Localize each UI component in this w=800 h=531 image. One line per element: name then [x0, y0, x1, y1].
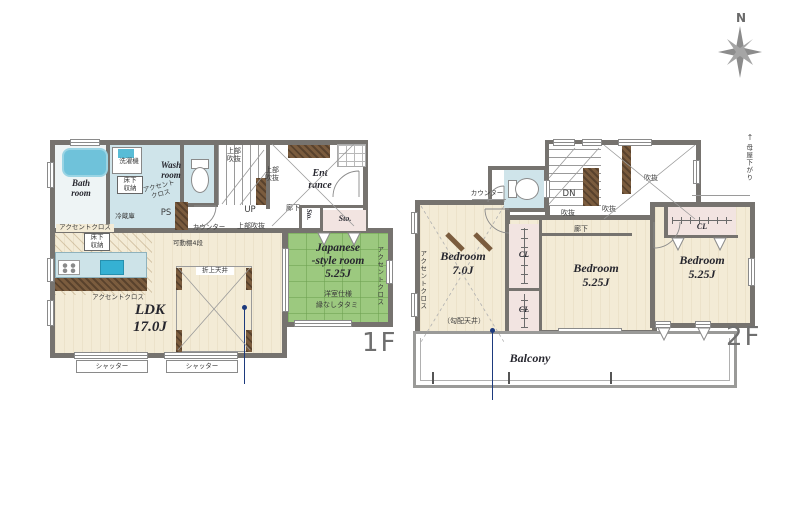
ldk-label: LDK 17.0J	[120, 302, 180, 337]
storage-small-label: Sto.	[305, 209, 313, 220]
floor2-label: 2F	[726, 322, 762, 352]
moya-sagari-line	[692, 195, 750, 196]
compass-star-diagonal	[727, 39, 753, 65]
section-line-1f	[244, 307, 245, 384]
floor1-label: 1F	[362, 328, 398, 358]
closet2-label: CL	[512, 305, 536, 314]
balcony-tick3	[610, 372, 612, 384]
sliding-door-tatami	[282, 248, 289, 312]
shutter-left-label: シャッター	[77, 363, 147, 371]
wall-bedroom2-top	[542, 233, 632, 236]
entrance-porch-tiles	[337, 144, 366, 167]
coffered-ceiling-box	[176, 266, 252, 352]
void3-label: 吹抜	[637, 174, 665, 182]
window-stairs-top2	[582, 139, 602, 146]
bathtub	[62, 148, 108, 177]
stairs-down-label: DN	[556, 189, 582, 199]
window-stairs-top1	[553, 139, 575, 146]
closet1-label: CL	[512, 250, 536, 259]
coffered-post-1	[176, 268, 182, 290]
accent-cloth-kitchen-bottom-label: アクセントクロス	[88, 294, 148, 302]
bath-room-label: Bath room	[60, 178, 102, 199]
underfloor-storage-kitchen-label: 床下 収納	[84, 233, 110, 251]
window-bath-left	[47, 162, 54, 188]
accent-cloth-tatami-label: アクセントクロス	[375, 246, 383, 306]
kitchen-sink	[100, 260, 124, 275]
wash-room-label: Wash room	[148, 160, 194, 181]
bedroom2-label: Bedroom 5.25J	[558, 262, 634, 290]
fridge-label: 冷蔵庫	[112, 213, 138, 221]
window-bedroom1-left2	[411, 293, 418, 317]
japanese-room-label: Japanese -style room 5.25J	[294, 242, 382, 282]
balcony-tick2	[508, 372, 510, 384]
void1-label: 吹抜	[554, 209, 582, 217]
storage-large-label: Sto.	[330, 214, 360, 223]
stairs-up-label: UP	[238, 205, 262, 215]
coffered-ceiling-label: 折上天井	[196, 267, 234, 275]
hallway1-label: 廊下	[281, 204, 305, 212]
balcony-inner-line	[420, 338, 730, 381]
compass-rose: N	[700, 8, 790, 103]
moya-arrow: ↑	[744, 133, 756, 143]
stove	[58, 260, 80, 275]
window-ldk-bottom2	[164, 352, 238, 359]
floor-plan-canvas: Bath room Wash room 洗濯機 床下 収納 アクセント クロス …	[0, 0, 800, 531]
wall-storage-top	[299, 205, 366, 208]
balcony-label: Balcony	[498, 352, 562, 366]
moya-sagari-label: 母屋下がり	[744, 144, 752, 182]
toilet2-bowl	[515, 178, 539, 200]
window-bedroom3-bottom1	[655, 321, 671, 328]
window-ldk-left2	[47, 300, 54, 326]
window-bedroom1-left1	[411, 212, 418, 234]
section-dot-2f	[490, 328, 495, 333]
void-upper2-label: 上部 吹抜	[260, 166, 284, 183]
section-dot-1f	[242, 305, 247, 310]
void-upper1-label: 上部 吹抜	[222, 147, 246, 164]
washer-label: 洗濯機	[114, 158, 144, 166]
accent-cloth-kitchen-top-label: アクセントクロス	[56, 224, 114, 232]
window-ldk-left1	[47, 258, 54, 282]
window-void-right	[693, 160, 700, 184]
hallway2-label: 廊下	[568, 225, 594, 233]
japanese-room-note1: 洋室仕様	[316, 290, 360, 298]
bedroom1-label: Bedroom 7.0J	[432, 250, 494, 278]
coffered-post-4	[246, 330, 252, 352]
shoe-cabinet	[288, 145, 330, 158]
section-line-2f	[492, 330, 493, 400]
bedroom3-label: Bedroom 5.25J	[664, 254, 740, 282]
wall-cl-right	[539, 220, 542, 332]
coffered-post-2	[246, 268, 252, 290]
japanese-room-note2: 縁なしタタミ	[306, 301, 368, 309]
counter1-label: カウンター	[192, 224, 226, 232]
void-upper3-label: 上部吹抜	[232, 222, 270, 230]
accent-cloth-bedroom1-label: アクセントクロス	[418, 250, 426, 310]
kitchen-counter-front	[55, 278, 147, 291]
void-shelf-strip	[622, 146, 631, 194]
window-void-top	[618, 139, 652, 146]
stairs2-post	[583, 168, 599, 206]
window-stairs-left	[543, 180, 550, 198]
window-tatami-bottom	[294, 320, 352, 327]
compass-star-main	[718, 26, 762, 78]
pipe-space-label: PS	[155, 208, 177, 218]
counter2-label: カウンター	[468, 190, 506, 198]
wall-cl3-bottom	[664, 235, 738, 238]
entrance-label: Ent rance	[300, 168, 340, 191]
window-bath-top	[70, 139, 100, 146]
compass-north-label: N	[736, 11, 746, 25]
bedroom1-note: （勾配天井）	[430, 317, 498, 325]
wall-cl3-left	[664, 202, 668, 235]
window-ldk-bottom1	[74, 352, 148, 359]
void2-label: 吹抜	[595, 205, 623, 213]
counter2-leader-line	[472, 199, 506, 200]
balcony-tick1	[432, 372, 434, 384]
window-tatami-right	[386, 260, 393, 284]
window-bedroom3-right	[748, 258, 755, 286]
window-bedroom3-bottom2	[695, 321, 711, 328]
closet3-label: CL	[690, 222, 714, 231]
shutter-right-label: シャッター	[167, 363, 237, 371]
movable-shelf-label: 可動棚4段	[167, 240, 209, 248]
